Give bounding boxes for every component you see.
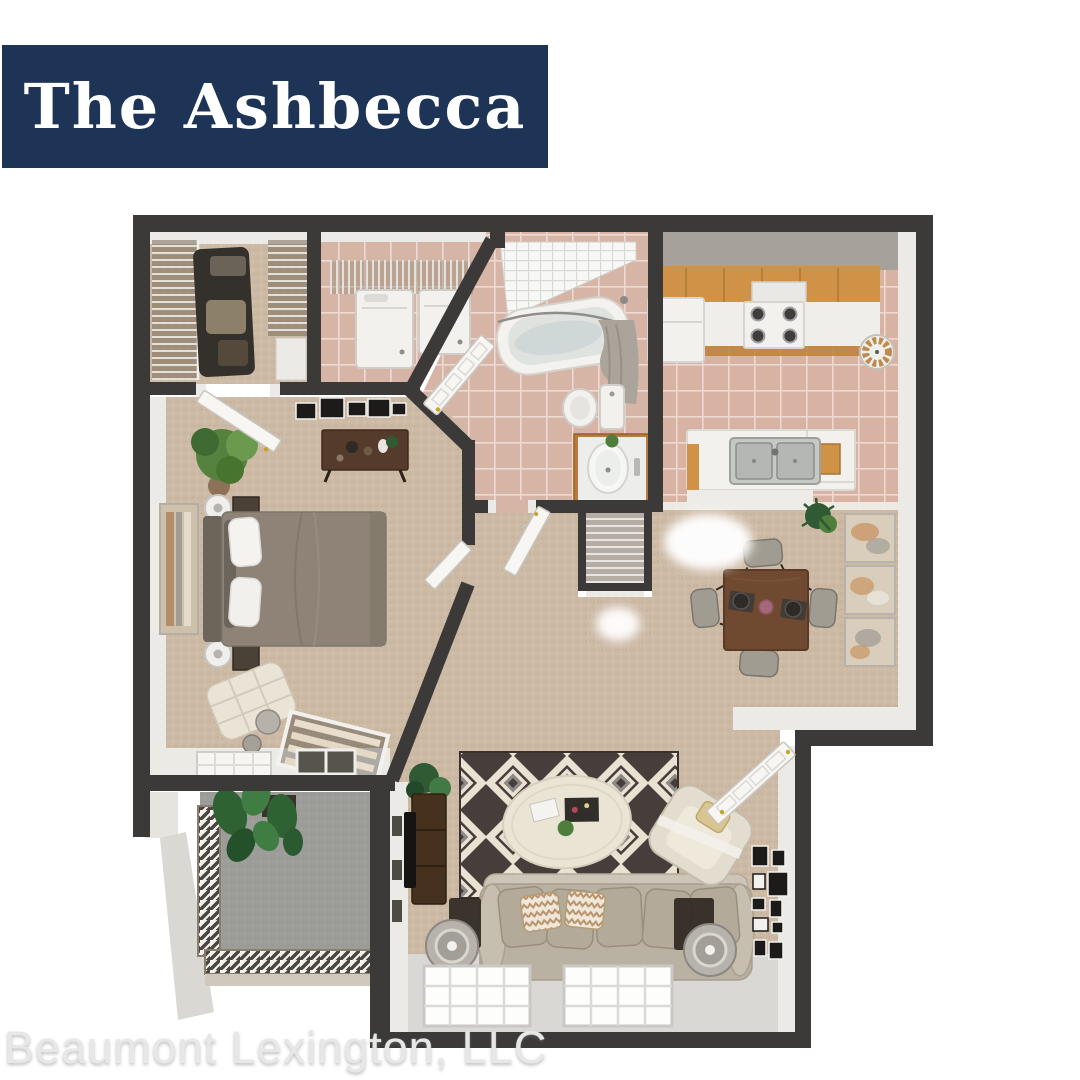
chevron-pillow	[564, 890, 606, 930]
entry-half-wall	[733, 707, 933, 730]
television	[404, 812, 416, 888]
room-walk-in-closet	[152, 240, 307, 380]
bed	[203, 512, 386, 646]
laundry-wire-shelf	[330, 260, 473, 294]
round-side-table	[256, 710, 280, 734]
patio-railing-left	[198, 806, 220, 956]
table-centerpiece	[759, 600, 773, 614]
bedroom-wall-art	[160, 504, 198, 634]
round-side-table	[243, 735, 261, 753]
drum-floor-lamp	[426, 920, 478, 972]
tub-faucet	[620, 296, 628, 304]
stove	[744, 302, 804, 348]
title-banner: The Ashbecca	[2, 45, 548, 168]
pillow	[228, 577, 261, 627]
media-console	[404, 763, 451, 904]
island-faucet	[772, 449, 779, 456]
linen-closet-shelves	[586, 511, 644, 585]
wall-clock	[860, 335, 894, 369]
dining-table	[724, 570, 808, 650]
render-highlight	[664, 514, 752, 570]
double-sink	[730, 438, 820, 484]
sink-faucet	[634, 458, 640, 476]
marketing-floorplan-page: The Ashbecca Beaumont Lexington, LLC	[0, 0, 1080, 1080]
company-watermark: Beaumont Lexington, LLC	[4, 1022, 547, 1074]
vanity-plant	[606, 435, 619, 448]
bedroom-window	[197, 752, 271, 778]
drum-floor-lamp	[684, 924, 736, 976]
bathroom-vanity	[574, 434, 650, 504]
living-room-window	[564, 966, 672, 1026]
pillow	[228, 517, 262, 567]
living-room-window	[424, 966, 530, 1026]
plan-title: The Ashbecca	[24, 70, 527, 143]
closet-shelving-left	[152, 240, 198, 380]
closet-hanging-clothes	[193, 247, 256, 378]
patio-railing-bottom	[205, 950, 373, 974]
render-highlight	[596, 607, 640, 641]
chevron-pillow	[520, 892, 563, 933]
patio-wall-windows	[392, 816, 402, 922]
patio-sliding-door	[297, 750, 355, 774]
dining-wall-art	[845, 514, 895, 666]
washer	[356, 290, 413, 368]
